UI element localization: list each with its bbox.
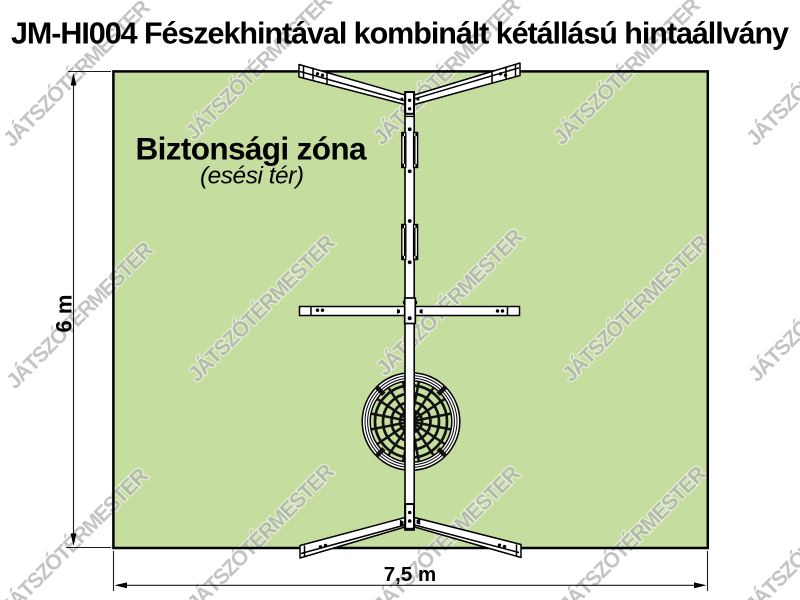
svg-text:6 m: 6 m [52, 295, 77, 333]
svg-text:7,5 m: 7,5 m [384, 563, 436, 586]
svg-text:JM-HI004 Fészekhintával kombin: JM-HI004 Fészekhintával kombinált kétáll… [11, 17, 789, 51]
svg-text:JÁTSZÓTÉRMESTER: JÁTSZÓTÉRMESTER [743, 229, 800, 386]
svg-text:(esési tér): (esési tér) [200, 163, 304, 190]
svg-text:JÁTSZÓTÉRMESTER: JÁTSZÓTÉRMESTER [740, 460, 800, 600]
svg-text:Biztonsági zóna: Biztonsági zóna [136, 131, 367, 167]
